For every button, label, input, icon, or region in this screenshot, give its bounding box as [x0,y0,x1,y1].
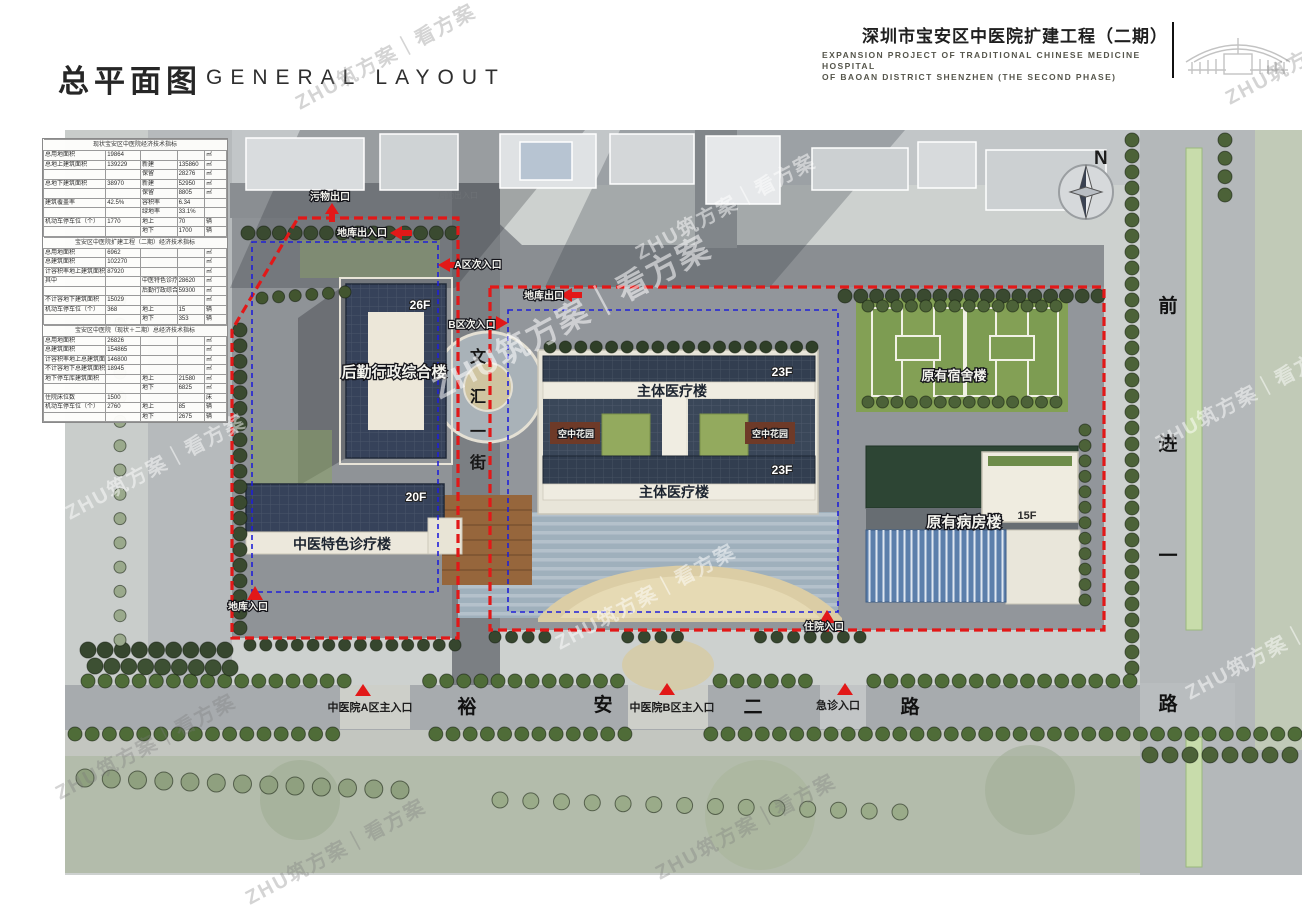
tree-icon [114,585,126,597]
tree-icon [312,778,330,796]
label-floors-15f: 15F [1018,510,1037,522]
tree-icon [1036,300,1048,312]
tree-icon [1125,133,1139,147]
tree-icon [276,639,288,651]
tree-icon [114,513,126,525]
tree-icon [339,286,351,298]
tree-icon [962,727,976,741]
table-row: 保留28276㎡ [44,170,227,180]
tree-icon [576,674,590,688]
tree-icon [80,642,96,658]
label-inpatient: 住院入口 [804,620,844,633]
tree-icon [1125,213,1139,227]
tree-icon [233,574,247,588]
tree-icon [222,660,238,676]
tree-icon [542,674,556,688]
tree-icon [244,639,256,651]
tree-icon [322,287,334,299]
tree-icon [492,792,508,808]
tree-icon [1202,747,1218,763]
tree-icon [798,674,812,688]
tree-icon [920,300,932,312]
tree-icon [1050,396,1062,408]
tree-icon [418,639,430,651]
tree-icon [1003,674,1017,688]
svg-text:裕: 裕 [457,695,476,718]
tree-icon [269,674,283,688]
table-section-header: 宝安区中医院扩建工程（二期）经济技术指标 [44,237,227,248]
tree-icon [1075,289,1089,303]
tree-icon [480,727,494,741]
tree-icon [1182,747,1198,763]
tree-icon [935,674,949,688]
tree-icon [1047,727,1061,741]
tree-icon [286,777,304,795]
tree-icon [273,291,285,303]
tree-icon [120,727,134,741]
tree-icon [1079,424,1091,436]
tree-icon [704,727,718,741]
label-floors-23f-north: 23F [772,365,793,379]
tree-icon [788,631,800,643]
table-row: 地下停车库建筑面积地上21580㎡ [44,374,227,384]
tree-icon [764,674,778,688]
tree-icon [1007,396,1019,408]
tree-icon [206,727,220,741]
tree-icon [584,795,600,811]
tree-icon [806,341,818,353]
tree-icon [1079,440,1091,452]
tree-icon [790,727,804,741]
tree-icon [1125,485,1139,499]
site-plan-sheet: 总平面图 GENERAL LAYOUT 深圳市宝安区中医院扩建工程（二期） Ex… [0,0,1302,921]
tree-icon [323,639,335,651]
tree-icon [905,396,917,408]
tree-icon [791,341,803,353]
tree-icon [1185,727,1199,741]
tree-icon [260,776,278,794]
tree-icon [129,771,147,789]
tree-icon [429,226,443,240]
tree-icon [1218,151,1232,165]
tree-icon [1125,325,1139,339]
tree-icon [606,341,618,353]
tree-icon [68,727,82,741]
tree-icon [339,779,357,797]
tree-icon [1125,549,1139,563]
tree-icon [1125,613,1139,627]
table-section-header: 宝安区中医院（现状＋二期）总经济技术指标 [44,325,227,336]
tree-icon [838,289,852,303]
tree-icon [1202,727,1216,741]
tree-icon [963,300,975,312]
tree-icon [272,226,286,240]
tree-icon [306,288,318,300]
tree-icon [1168,727,1182,741]
label-ward: 原有病房楼 [926,513,1001,531]
tree-icon [121,659,137,675]
tree-icon [1106,674,1120,688]
tree-icon [114,561,126,573]
tree-icon [824,727,838,741]
tree-icon [440,674,454,688]
tree-icon [1065,727,1079,741]
tree-icon [1089,674,1103,688]
tree-icon [233,354,247,368]
tree-icon [918,674,932,688]
tree-icon [1079,579,1091,591]
tree-icon [646,797,662,813]
tree-icon [1237,727,1251,741]
table-row: 计容积率地上总建筑面积146800㎡ [44,355,227,365]
tree-icon [867,674,881,688]
tree-icon [188,660,204,676]
tree-icon [996,727,1010,741]
tree-icon [234,775,252,793]
tree-icon [738,727,752,741]
tree-icon [1125,165,1139,179]
tree-icon [85,727,99,741]
tree-icon [1254,727,1268,741]
label-garage-gate: 地库出入口 [337,226,387,239]
tree-icon [861,803,877,819]
tree-icon [1079,548,1091,560]
tree-icon [523,793,539,809]
tree-icon [891,300,903,312]
tree-icon [891,396,903,408]
tree-icon [622,631,634,643]
tree-icon [257,226,271,240]
tree-icon [1050,300,1062,312]
tree-icon [877,396,889,408]
tree-icon [515,727,529,741]
tree-icon [747,674,761,688]
tree-icon [698,341,710,353]
tree-icon [1079,563,1091,575]
tree-icon [910,727,924,741]
tree-icon [98,674,112,688]
table-row: 总地上建筑面积139229新建135860㎡ [44,160,227,170]
tree-icon [539,631,551,643]
tree-icon [1219,727,1233,741]
tree-icon [1079,532,1091,544]
spec-table: 现状宝安区中医院经济技术指标总用地面积19864㎡总地上建筑面积139229新建… [42,138,228,423]
tree-icon [498,727,512,741]
tree-icon [893,727,907,741]
tree-icon [841,727,855,741]
tree-icon [986,674,1000,688]
tree-icon [755,631,767,643]
tree-icon [858,727,872,741]
tree-icon [402,639,414,651]
tree-icon [240,727,254,741]
label-garage-exit: 地库出口 [524,289,564,302]
tree-icon [291,727,305,741]
tree-icon [773,727,787,741]
tree-icon [1038,674,1052,688]
tree-icon [714,341,726,353]
tree-icon [205,660,221,676]
tree-icon [1007,300,1019,312]
tree-icon [963,396,975,408]
tree-icon [1288,727,1302,741]
tree-icon [884,674,898,688]
tree-icon [554,794,570,810]
label-dorm: 原有宿舍楼 [921,368,986,383]
tree-icon [102,727,116,741]
tree-icon [87,658,103,674]
table-row: 地下6825㎡ [44,384,227,394]
tree-icon [489,631,501,643]
tree-icon [1125,309,1139,323]
tree-icon [969,674,983,688]
tree-icon [1262,747,1278,763]
tree-icon [391,781,409,799]
tree-icon [730,674,744,688]
tree-icon [1099,727,1113,741]
table-row: 建筑覆盖率42.5%容积率6.34 [44,198,227,208]
tree-icon [81,674,95,688]
tree-icon [1271,727,1285,741]
tree-icon [506,631,518,643]
tree-icon [1125,453,1139,467]
tree-icon [934,300,946,312]
tree-icon [233,511,247,525]
table-row: 计容积率地上建筑面积87920㎡ [44,267,227,277]
svg-text:路: 路 [900,695,920,718]
tree-icon [1055,674,1069,688]
tree-icon [233,543,247,557]
tree-icon [1125,293,1139,307]
table-row: 总用地面积26826㎡ [44,336,227,346]
label-waste-exit: 污物出口 [310,190,350,203]
tree-icon [233,527,247,541]
tree-icon [508,674,522,688]
table-row: 地下2675辆 [44,412,227,422]
tree-icon [992,300,1004,312]
tree-icon [667,341,679,353]
tree-icon [233,323,247,337]
tree-icon [181,773,199,791]
table-row: 总用地面积6962㎡ [44,248,227,258]
tree-icon [1125,341,1139,355]
tree-icon [235,674,249,688]
tree-icon [944,727,958,741]
tree-icon [920,396,932,408]
tree-icon [233,621,247,635]
tree-icon [1222,747,1238,763]
tree-icon [1021,674,1035,688]
svg-text:路: 路 [1158,692,1178,715]
tree-icon [877,300,889,312]
tree-icon [252,674,266,688]
tree-icon [655,631,667,643]
tree-icon [1021,396,1033,408]
tree-icon [1133,727,1147,741]
tree-icon [1125,277,1139,291]
tree-icon [184,674,198,688]
tree-icon [339,639,351,651]
building-dorm [856,298,1068,412]
tree-icon [1151,727,1165,741]
tree-icon [97,642,113,658]
tree-icon [721,727,735,741]
tree-icon [1125,373,1139,387]
svg-text:街: 街 [469,453,486,472]
label-b-main-entrance: 中医院B区主入口 [630,700,715,714]
label-floors-23f-south: 23F [772,463,793,477]
tree-icon [707,799,723,815]
tree-icon [155,659,171,675]
tree-icon [1125,229,1139,243]
tree-icon [320,226,334,240]
label-tcm-clinic: 中医特色诊疗楼 [293,536,391,552]
svg-text:安: 安 [593,693,612,716]
tree-icon [1125,565,1139,579]
tree-icon [949,396,961,408]
tree-icon [601,727,615,741]
tree-icon [672,631,684,643]
tree-icon [291,639,303,651]
tree-icon [1079,594,1091,606]
label-emergency-entrance: 急诊入口 [816,698,860,712]
svg-text:一: 一 [470,424,486,441]
tree-icon [978,396,990,408]
north-label: N [1094,148,1108,169]
tree-icon [131,642,147,658]
tree-icon [775,341,787,353]
tree-icon [683,341,695,353]
tree-icon [171,659,187,675]
tree-icon [927,727,941,741]
tree-icon [233,480,247,494]
tree-icon [979,727,993,741]
tree-icon [326,727,340,741]
tree-icon [1125,597,1139,611]
tree-icon [522,631,534,643]
svg-text:前: 前 [1158,294,1177,317]
table-row: 绿地率33.1% [44,208,227,218]
table-row: 保留8805㎡ [44,189,227,199]
tree-icon [621,341,633,353]
label-sky-garden-right: 空中花园 [752,428,788,439]
tree-icon [1125,629,1139,643]
tree-icon [1162,747,1178,763]
tree-icon [386,639,398,651]
tree-icon [115,674,129,688]
tree-icon [307,639,319,651]
table-row: 总建筑面积102270㎡ [44,258,227,268]
tree-icon [992,396,1004,408]
tree-icon [1125,421,1139,435]
label-garage-entry: 地库入口 [228,600,268,613]
tree-icon [525,674,539,688]
tree-icon [1030,727,1044,741]
tree-icon [309,727,323,741]
table-row: 机动车停车位（个）2760地上85辆 [44,403,227,413]
tree-icon [1079,470,1091,482]
tree-icon [901,674,915,688]
label-a-main-entrance: 中医院A区主入口 [328,700,413,714]
tree-icon [1021,300,1033,312]
svg-text:一: 一 [1158,546,1177,567]
tree-icon [1125,517,1139,531]
tree-icon [337,674,351,688]
tree-icon [575,341,587,353]
table-row: 住院床位数1500床 [44,393,227,403]
tree-icon [183,642,199,658]
tree-icon [618,727,632,741]
tree-icon [1123,674,1137,688]
label-logistics-entrance: 后勤出入口 [438,190,478,200]
tree-icon [755,727,769,741]
tree-icon [320,674,334,688]
tree-icon [288,226,302,240]
tree-icon [233,449,247,463]
table-row: 总用地面积19864㎡ [44,151,227,161]
tree-icon [233,370,247,384]
tree-icon [166,674,180,688]
tree-icon [256,292,268,304]
tree-icon [549,727,563,741]
tree-icon [433,639,445,651]
tree-icon [978,300,990,312]
tree-icon [365,780,383,798]
table-row: 总地下建筑面积38970新建52950㎡ [44,179,227,189]
tree-icon [1125,149,1139,163]
tree-icon [1125,533,1139,547]
tree-icon [104,658,120,674]
tree-icon [1036,396,1048,408]
tree-icon [1125,357,1139,371]
tree-icon [949,300,961,312]
tree-icon [303,674,317,688]
tree-icon [1013,727,1027,741]
tree-icon [414,226,428,240]
tree-icon [149,642,165,658]
svg-text:ZHU筑方案｜看方案: ZHU筑方案｜看方案 [291,0,480,114]
tree-icon [1218,170,1232,184]
label-sky-garden-left: 空中花园 [558,428,594,439]
label-b-secondary: B区次入口 [448,318,495,331]
tree-icon [257,727,271,741]
tree-icon [1125,181,1139,195]
tree-icon [1218,133,1232,147]
tree-icon [876,727,890,741]
table-row: 不计容地下建筑面积15029㎡ [44,296,227,306]
table-row: 机动车停车位（个）1770地上70辆 [44,217,227,227]
tree-icon [1125,501,1139,515]
tree-icon [1125,261,1139,275]
tree-icon [854,631,866,643]
tree-icon [207,774,225,792]
tree-icon [1059,289,1073,303]
table-row: 不计容地下总建筑面积18945㎡ [44,365,227,375]
tree-icon [233,496,247,510]
tree-icon [713,674,727,688]
tree-icon [1082,727,1096,741]
tree-icon [233,464,247,478]
tree-icon [1125,197,1139,211]
tree-icon [132,674,146,688]
tree-icon [1125,405,1139,419]
tree-icon [677,798,693,814]
table-row: 地下353辆 [44,315,227,325]
tree-icon [1142,747,1158,763]
tree-icon [862,300,874,312]
tree-icon [260,639,272,651]
svg-text:ZHU筑方案｜看方案: ZHU筑方案｜看方案 [1221,0,1302,109]
